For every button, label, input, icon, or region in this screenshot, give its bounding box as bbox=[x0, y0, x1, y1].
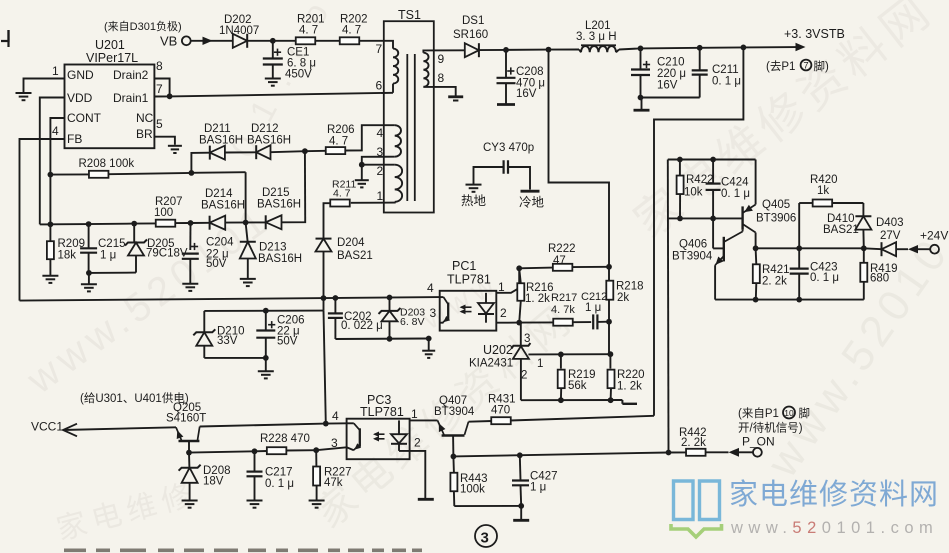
svg-text:2. 2k: 2. 2k bbox=[681, 437, 706, 449]
svg-text:FB: FB bbox=[67, 132, 82, 146]
svg-text:1k: 1k bbox=[817, 185, 829, 197]
svg-text:10: 10 bbox=[784, 408, 794, 418]
svg-text:4: 4 bbox=[377, 126, 384, 140]
svg-text:R421: R421 bbox=[762, 264, 790, 276]
svg-text:D213: D213 bbox=[259, 242, 287, 254]
svg-text:16V: 16V bbox=[516, 88, 537, 100]
svg-text:R222: R222 bbox=[548, 243, 576, 255]
svg-text:+24V: +24V bbox=[920, 229, 948, 243]
svg-text:BT3906: BT3906 bbox=[756, 213, 796, 225]
svg-text:BT3904: BT3904 bbox=[672, 251, 713, 263]
svg-text:10k: 10k bbox=[684, 187, 703, 199]
svg-text:7: 7 bbox=[376, 42, 383, 56]
svg-text:56k: 56k bbox=[568, 380, 587, 392]
svg-text:U201: U201 bbox=[95, 38, 125, 52]
svg-text:4. 7: 4. 7 bbox=[333, 188, 351, 200]
svg-text:8: 8 bbox=[156, 59, 163, 73]
svg-text:C217: C217 bbox=[265, 467, 293, 479]
svg-text:C208: C208 bbox=[516, 66, 544, 78]
svg-text:冷地: 冷地 bbox=[519, 196, 545, 210]
svg-text:1. 2k: 1. 2k bbox=[617, 381, 642, 393]
svg-text:0. 1 μ: 0. 1 μ bbox=[265, 478, 294, 490]
svg-text:+3. 3VSTB: +3. 3VSTB bbox=[784, 27, 845, 41]
svg-text:VIPer17L: VIPer17L bbox=[86, 51, 138, 65]
svg-text:1: 1 bbox=[537, 358, 543, 370]
svg-text:U202: U202 bbox=[483, 343, 513, 357]
svg-text:TLP781: TLP781 bbox=[447, 273, 491, 287]
svg-text:3. 3 μ H: 3. 3 μ H bbox=[576, 31, 617, 43]
svg-text:1 μ: 1 μ bbox=[530, 482, 546, 494]
svg-text:家电维修资料网: 家电维修资料网 bbox=[729, 478, 939, 511]
svg-text:0. 1 μ: 0. 1 μ bbox=[712, 76, 741, 88]
svg-text:R217: R217 bbox=[551, 292, 577, 304]
svg-text:9: 9 bbox=[438, 52, 445, 66]
svg-text:C211: C211 bbox=[712, 64, 739, 76]
svg-text:1: 1 bbox=[52, 64, 59, 78]
svg-text:4. 7: 4. 7 bbox=[342, 25, 361, 37]
svg-text:27V: 27V bbox=[880, 230, 901, 242]
svg-text:D211: D211 bbox=[204, 123, 231, 135]
svg-text:D204: D204 bbox=[337, 237, 365, 249]
svg-text:450V: 450V bbox=[285, 69, 312, 81]
svg-text:VCC1: VCC1 bbox=[31, 420, 63, 434]
svg-text:79C18V: 79C18V bbox=[146, 248, 188, 260]
svg-text:DS1: DS1 bbox=[462, 15, 484, 27]
svg-text:BAS16H: BAS16H bbox=[257, 199, 301, 211]
svg-text:TLP781: TLP781 bbox=[360, 405, 404, 419]
svg-text:2: 2 bbox=[500, 306, 507, 320]
svg-text:NC: NC bbox=[136, 111, 154, 125]
svg-text:47k: 47k bbox=[324, 477, 343, 489]
svg-text:1. 2k: 1. 2k bbox=[525, 293, 550, 305]
svg-text:脚: 脚 bbox=[799, 406, 811, 420]
svg-text:4: 4 bbox=[52, 124, 59, 138]
svg-text:开/待机信号): 开/待机信号) bbox=[738, 421, 803, 435]
svg-text:BAS21: BAS21 bbox=[823, 224, 859, 236]
svg-text:TS1: TS1 bbox=[398, 8, 421, 22]
svg-text:4. 7: 4. 7 bbox=[299, 25, 318, 37]
svg-text:3: 3 bbox=[430, 306, 437, 320]
svg-text:BAS16H: BAS16H bbox=[199, 135, 243, 147]
svg-text:R220: R220 bbox=[617, 369, 645, 381]
svg-text:3: 3 bbox=[481, 530, 489, 547]
svg-text:脚): 脚) bbox=[814, 59, 829, 73]
svg-text:4. 7: 4. 7 bbox=[329, 136, 348, 148]
svg-text:2: 2 bbox=[521, 370, 527, 382]
svg-text:6: 6 bbox=[376, 79, 383, 93]
svg-text:680: 680 bbox=[870, 273, 889, 285]
svg-text:S4160T: S4160T bbox=[166, 413, 206, 425]
svg-text:Q406: Q406 bbox=[679, 239, 707, 251]
svg-text:R208 100k: R208 100k bbox=[79, 158, 135, 170]
svg-text:KIA2431: KIA2431 bbox=[469, 358, 513, 370]
svg-text:D214: D214 bbox=[205, 188, 233, 200]
svg-text:7: 7 bbox=[803, 61, 808, 72]
svg-text:0. 022 μ: 0. 022 μ bbox=[341, 320, 383, 332]
svg-text:(去P1: (去P1 bbox=[766, 60, 795, 73]
svg-text:3: 3 bbox=[331, 436, 338, 450]
svg-text:1 μ: 1 μ bbox=[100, 250, 116, 262]
svg-text:C210: C210 bbox=[657, 57, 685, 69]
svg-text:P_ON: P_ON bbox=[742, 435, 775, 449]
svg-text:D403: D403 bbox=[876, 217, 904, 229]
svg-text:16V: 16V bbox=[657, 80, 678, 92]
svg-text:1N4007: 1N4007 bbox=[219, 25, 259, 37]
svg-text:3: 3 bbox=[377, 145, 384, 159]
svg-text:C424: C424 bbox=[721, 177, 749, 189]
svg-text:18k: 18k bbox=[58, 250, 77, 262]
svg-text:SR160: SR160 bbox=[453, 29, 488, 41]
svg-text:www.520101.com: www.520101.com bbox=[730, 519, 938, 537]
svg-text:BAS16H: BAS16H bbox=[201, 200, 245, 212]
svg-text:220 μ: 220 μ bbox=[657, 68, 686, 80]
svg-text:D215: D215 bbox=[262, 187, 290, 199]
svg-text:C215: C215 bbox=[98, 238, 126, 250]
svg-text:1 μ: 1 μ bbox=[585, 302, 601, 314]
svg-text:4: 4 bbox=[427, 281, 434, 295]
svg-text:100: 100 bbox=[154, 207, 173, 219]
svg-text:2. 2k: 2. 2k bbox=[762, 276, 787, 288]
svg-text:R228 470: R228 470 bbox=[260, 433, 310, 445]
svg-text:VDD: VDD bbox=[67, 91, 93, 105]
svg-text:50V: 50V bbox=[206, 258, 227, 270]
svg-text:BT3904: BT3904 bbox=[434, 406, 475, 418]
svg-text:BAS16H: BAS16H bbox=[258, 253, 302, 265]
svg-text:8: 8 bbox=[438, 71, 445, 85]
svg-text:18V: 18V bbox=[203, 476, 224, 488]
svg-text:(来自P1: (来自P1 bbox=[738, 407, 779, 420]
svg-text:CONT: CONT bbox=[67, 111, 102, 125]
svg-text:2k: 2k bbox=[617, 292, 629, 304]
svg-text:2: 2 bbox=[377, 164, 384, 178]
svg-text:47: 47 bbox=[553, 255, 566, 267]
svg-text:(来自D301负极): (来自D301负极) bbox=[104, 19, 182, 33]
svg-text:6. 8V: 6. 8V bbox=[400, 316, 425, 328]
svg-text:BAS21: BAS21 bbox=[337, 250, 373, 262]
svg-text:7: 7 bbox=[156, 82, 163, 96]
svg-text:Q405: Q405 bbox=[762, 199, 790, 211]
svg-text:470: 470 bbox=[491, 405, 510, 417]
svg-text:R218: R218 bbox=[616, 281, 644, 293]
svg-text:2: 2 bbox=[414, 436, 421, 450]
svg-text:VB: VB bbox=[160, 34, 177, 49]
svg-text:PC1: PC1 bbox=[452, 259, 476, 273]
svg-text:Drain2: Drain2 bbox=[113, 68, 149, 82]
svg-text:50V: 50V bbox=[277, 336, 298, 348]
svg-text:CY3 470p: CY3 470p bbox=[483, 142, 534, 154]
svg-text:BR: BR bbox=[136, 127, 153, 141]
svg-text:1: 1 bbox=[411, 407, 418, 421]
svg-text:4: 4 bbox=[332, 409, 339, 423]
svg-text:D212: D212 bbox=[251, 123, 279, 135]
svg-text:C204: C204 bbox=[206, 237, 234, 249]
svg-text:0. 1 μ: 0. 1 μ bbox=[810, 272, 839, 284]
svg-text:BAS16H: BAS16H bbox=[247, 135, 291, 147]
svg-text:100k: 100k bbox=[460, 484, 485, 496]
svg-text:R206: R206 bbox=[327, 124, 355, 136]
svg-text:GND: GND bbox=[67, 68, 94, 82]
svg-text:0. 1 μ: 0. 1 μ bbox=[721, 188, 750, 200]
svg-text:1: 1 bbox=[377, 189, 384, 203]
svg-text:4. 7k: 4. 7k bbox=[551, 304, 575, 316]
svg-text:Drain1: Drain1 bbox=[113, 91, 149, 105]
svg-text:33V: 33V bbox=[217, 335, 238, 347]
svg-text:热地: 热地 bbox=[461, 194, 487, 208]
svg-text:5: 5 bbox=[156, 117, 163, 131]
